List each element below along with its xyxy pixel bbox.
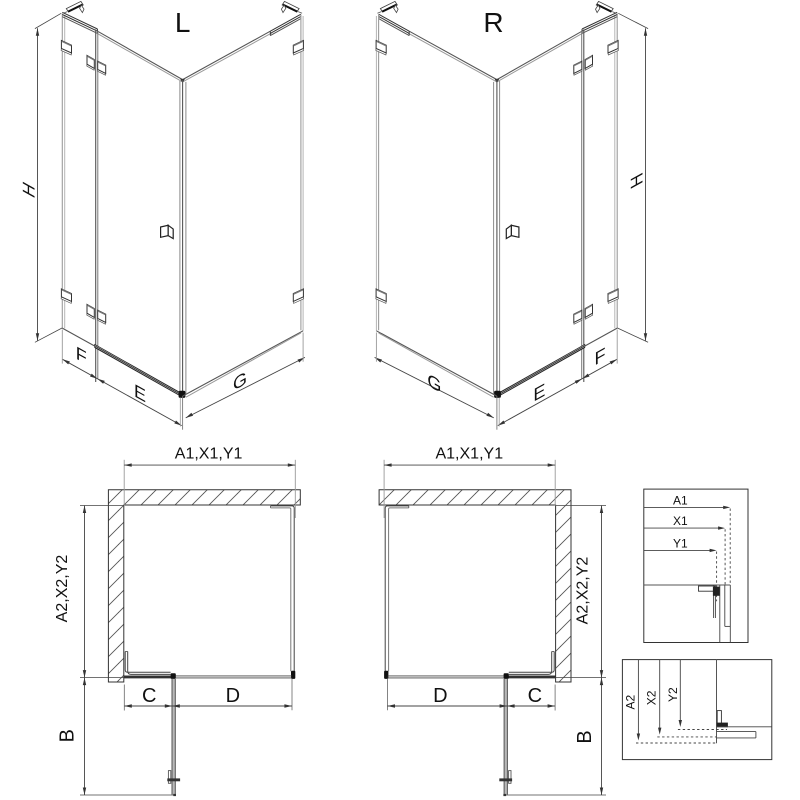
svg-text:C: C <box>142 685 156 707</box>
svg-text:A2: A2 <box>624 694 638 709</box>
svg-text:Y2: Y2 <box>666 687 680 702</box>
svg-text:L: L <box>175 7 191 38</box>
svg-text:B: B <box>56 729 78 742</box>
svg-text:C: C <box>528 685 542 707</box>
svg-text:R: R <box>483 7 503 38</box>
svg-text:A1,X1,Y1: A1,X1,Y1 <box>175 446 243 463</box>
svg-text:A1: A1 <box>673 493 688 507</box>
svg-text:B: B <box>574 730 596 743</box>
svg-text:D: D <box>226 685 240 707</box>
svg-text:X2: X2 <box>645 690 659 705</box>
svg-text:D: D <box>433 685 447 707</box>
svg-text:A2,X2,Y2: A2,X2,Y2 <box>574 557 591 625</box>
svg-text:X1: X1 <box>673 514 688 528</box>
svg-text:Y1: Y1 <box>673 536 688 550</box>
svg-text:A1,X1,Y1: A1,X1,Y1 <box>435 446 503 463</box>
svg-text:A2,X2,Y2: A2,X2,Y2 <box>54 555 71 623</box>
